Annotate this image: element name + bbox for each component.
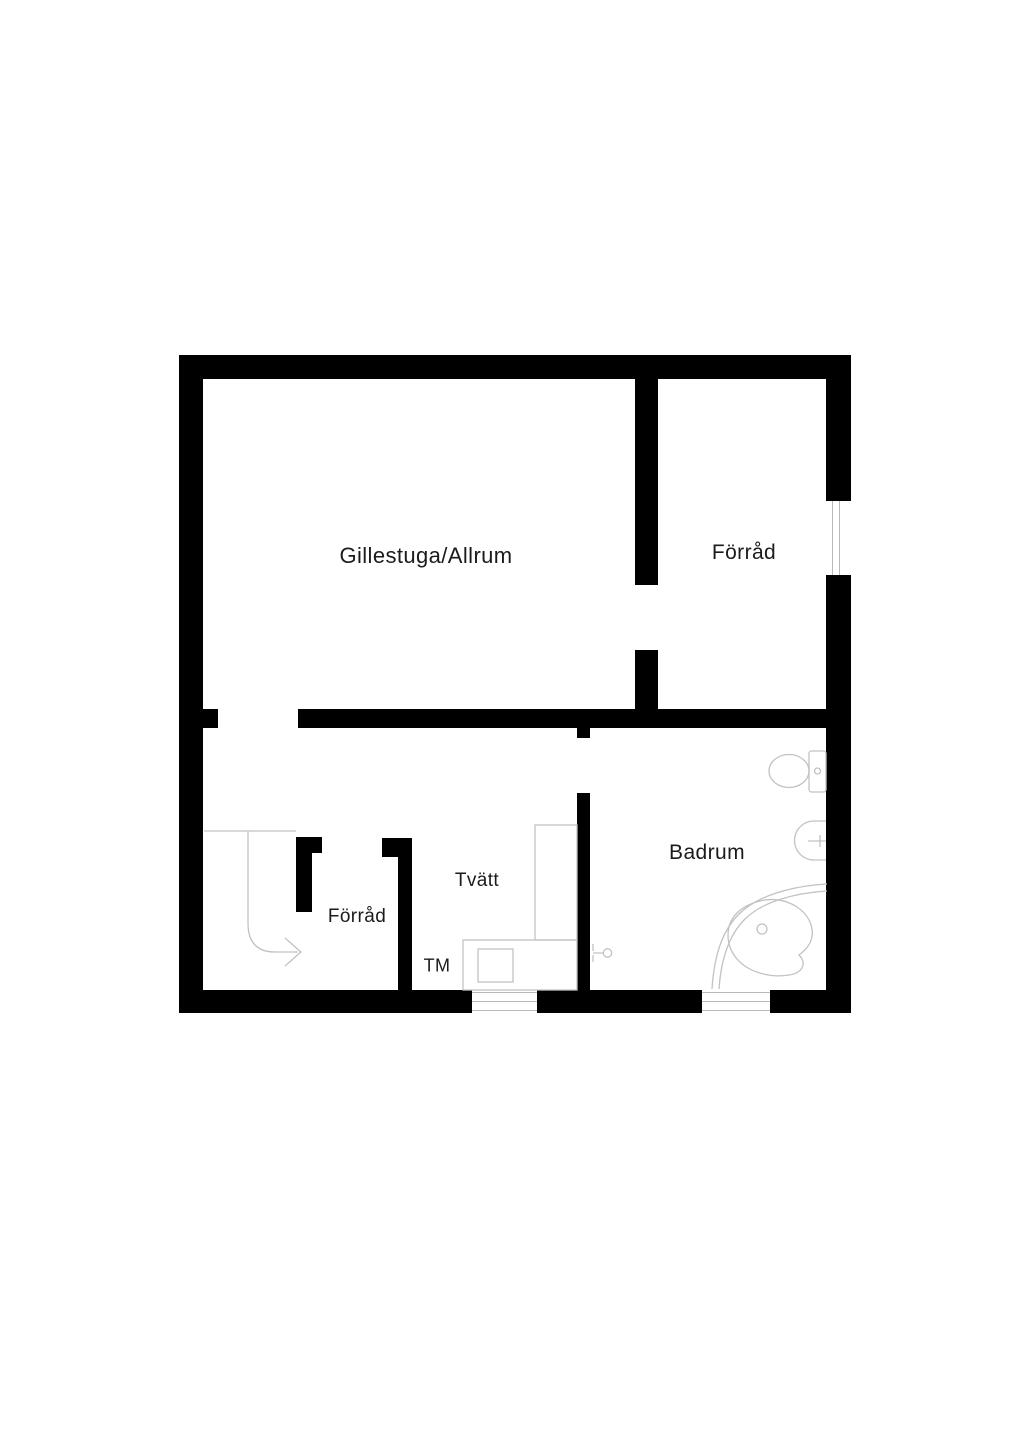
room-label-badrum: Badrum	[669, 841, 745, 865]
washing-machine-icon	[478, 949, 513, 982]
appliance-label-tm: TM	[424, 956, 451, 977]
toilet-icon	[769, 751, 826, 792]
room-label-forrad-small: Förråd	[328, 906, 386, 928]
door-handle-icon	[593, 944, 612, 962]
sink-icon	[795, 821, 827, 860]
floor-plan: Gillestuga/Allrum Förråd Förråd Tvätt Ba…	[179, 355, 851, 1013]
corner-bathtub-icon	[712, 884, 827, 989]
fixtures-layer	[179, 355, 851, 1013]
room-label-forrad-top: Förråd	[712, 541, 776, 565]
stairs-icon	[204, 831, 301, 966]
room-label-gillestuga: Gillestuga/Allrum	[339, 543, 512, 569]
floorplan-canvas: Gillestuga/Allrum Förråd Förråd Tvätt Ba…	[0, 0, 1024, 1448]
room-label-tvatt: Tvätt	[455, 870, 499, 892]
laundry-counter-icon	[463, 825, 577, 990]
